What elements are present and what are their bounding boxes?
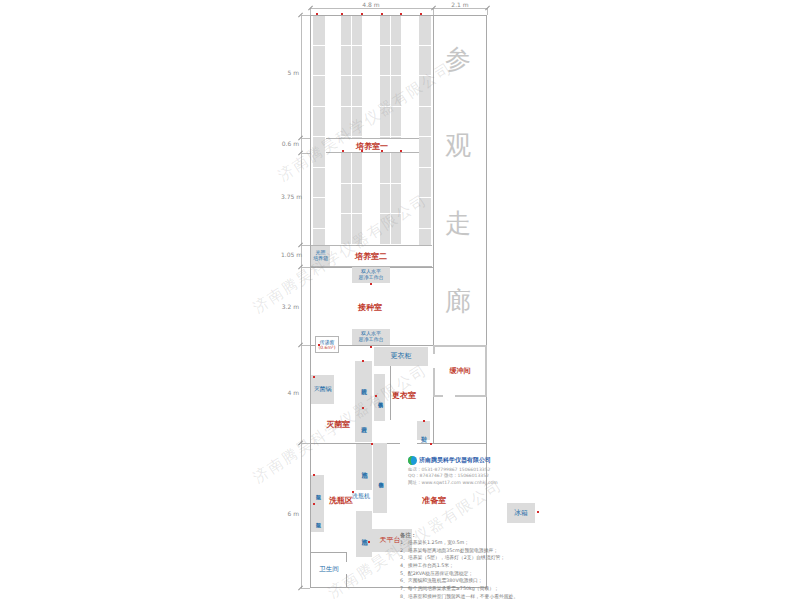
note-item: 8、培养室和接种室门预留风道一样，不要小看外观处。 — [400, 593, 530, 600]
dim-ext-left — [301, 15, 310, 16]
buffer-room-door-gap-bottom — [443, 394, 455, 398]
toilet-label: 卫生间 — [311, 564, 347, 576]
clean-bench-1: 双人水平 超净工作台 — [352, 267, 390, 283]
red-reference-dot — [313, 503, 315, 505]
red-reference-dot — [371, 443, 373, 445]
corridor-char: 廊 — [445, 284, 467, 319]
note-item: 7、每个房间培养架承重需≥750kg（荷载）； — [400, 585, 530, 593]
bottle-drying-rack-1: 晾瓶架 — [311, 475, 324, 504]
inoculation-room-label: 接种室 — [358, 302, 382, 313]
red-reference-dot — [537, 511, 539, 513]
notes-items: 1、培养架长1.25m，宽0.5m；2、培养架每层离地面35cm处预留电源插座；… — [400, 539, 530, 600]
culture-room-2-label: 培养室二 — [355, 251, 387, 262]
dim-label-left: 4 m — [281, 389, 299, 396]
company-contact-line: 网址：www.sqwt17.com www.cnhkj.com — [408, 480, 518, 485]
red-reference-dot — [342, 150, 344, 152]
stainless-bench: 不锈钢条凳 — [374, 374, 385, 421]
dim-label-left: 1.05 m — [281, 251, 299, 258]
clean-bench-2: 双人水平 超净工作台 — [352, 329, 390, 345]
red-reference-dot — [381, 150, 383, 152]
dim-ext-left — [301, 138, 310, 139]
notes-block: 备注： 1、培养架长1.25m，宽0.5m；2、培养架每层离地面35cm处预留电… — [400, 532, 530, 600]
red-reference-dot — [423, 420, 425, 422]
red-reference-dot — [316, 13, 318, 15]
prep-room-wall-right-segment — [417, 443, 487, 444]
light-incubator: 光照 培养箱 — [311, 246, 330, 266]
note-item: 1、培养架长1.25m，宽0.5m； — [400, 539, 530, 547]
changing-room-divider-wall — [390, 366, 391, 420]
dim-ext-left — [301, 267, 310, 268]
red-reference-dot — [362, 407, 364, 409]
dim-label-left: 3.2 m — [281, 303, 299, 310]
note-item: 5、配2KVA稳压器保证电源稳定； — [400, 570, 530, 578]
company-logo-icon — [408, 456, 417, 465]
red-reference-dot — [313, 376, 315, 378]
dim-ext-left — [301, 588, 310, 589]
corridor-char: 参 — [445, 42, 467, 77]
red-reference-dot — [361, 150, 363, 152]
red-reference-dot — [352, 491, 354, 493]
dim-ext-left — [301, 153, 310, 154]
sterilization-room-label: 灭菌室 — [326, 419, 350, 430]
changing-room-label: 更衣室 — [392, 390, 416, 401]
corridor-char: 走 — [445, 206, 467, 241]
red-reference-dot — [430, 443, 432, 445]
red-reference-dot — [370, 283, 372, 285]
shoe-rack: 鞋架 — [417, 421, 430, 440]
dim-label-left: 3.75 m — [281, 193, 299, 200]
sterilizer-pot: 灭菌锅 — [311, 375, 334, 404]
company-name: 济南腾昊科学仪器有限公司 — [419, 456, 491, 465]
red-reference-dot — [361, 13, 363, 15]
dim-label-top: 2.1 m — [451, 1, 468, 8]
company-block: 济南腾昊科学仪器有限公司 电话：0531-87799867 1506601335… — [408, 456, 518, 485]
red-reference-dot — [420, 13, 422, 15]
dim-label-left: 6 m — [281, 510, 299, 517]
note-item: 4、接种工作台高1.5米； — [400, 562, 530, 570]
dim-ext-left — [301, 245, 310, 246]
red-reference-dot — [400, 150, 402, 152]
pass-window-area: (0.6m²) — [319, 345, 336, 350]
company-contact-line: 电话：0531-87799867 15066013352 — [408, 467, 518, 472]
corridor-char: 观 — [445, 128, 467, 163]
note-item: 2、培养架每层离地面35cm处预留电源插座； — [400, 547, 530, 555]
red-reference-dot — [368, 541, 370, 543]
red-reference-dot — [400, 13, 402, 15]
dim-label-top: 4.8 m — [362, 1, 379, 8]
dim-ext-left — [301, 443, 310, 444]
floor-plan-canvas: 传递窗 (0.6m²) 光照 培养箱双人水平 超净工作台双人水平 超净工作台更衣… — [0, 0, 800, 600]
dim-ext-left — [301, 345, 310, 346]
note-item: 3、培养架（5层），培养灯（2支）自镇流灯管； — [400, 554, 530, 562]
dim-line-left — [301, 15, 302, 588]
red-reference-dot — [362, 360, 364, 362]
dim-label-left: 0.6 m — [281, 140, 299, 147]
preparation-room-label: 准备室 — [422, 495, 446, 506]
buffer-room-label: 缓冲间 — [450, 366, 471, 376]
refrigerator: 冰箱 — [507, 503, 535, 523]
bottle-washing-area-label: 洗瓶区 — [329, 495, 353, 506]
red-reference-dot — [370, 346, 372, 348]
red-reference-dot — [318, 344, 320, 346]
dim-label-left: 5 m — [281, 69, 299, 76]
changing-locker: 更衣柜 — [374, 347, 428, 366]
note-item: 6、灭菌锅和洗瓶机需380V电源接口； — [400, 577, 530, 585]
buffer-room-door-gap-left — [432, 354, 436, 368]
soaking-pool-1: 泡瓶池 — [356, 444, 372, 490]
notes-title: 备注： — [400, 532, 530, 539]
company-contact-lines: 电话：0531-87799867 15066013352QQ：87437467 … — [408, 467, 518, 485]
red-reference-dot — [375, 395, 377, 397]
bottle-drying-rack-2: 晾瓶架 — [311, 504, 324, 532]
red-reference-dot — [313, 474, 315, 476]
dim-line-top — [310, 8, 487, 9]
red-reference-dot — [381, 13, 383, 15]
red-reference-dot — [341, 13, 343, 15]
stainless-worktable: 不锈钢工作台 — [373, 443, 387, 513]
company-contact-line: QQ：87437467 微信：15066013352 — [408, 473, 518, 478]
